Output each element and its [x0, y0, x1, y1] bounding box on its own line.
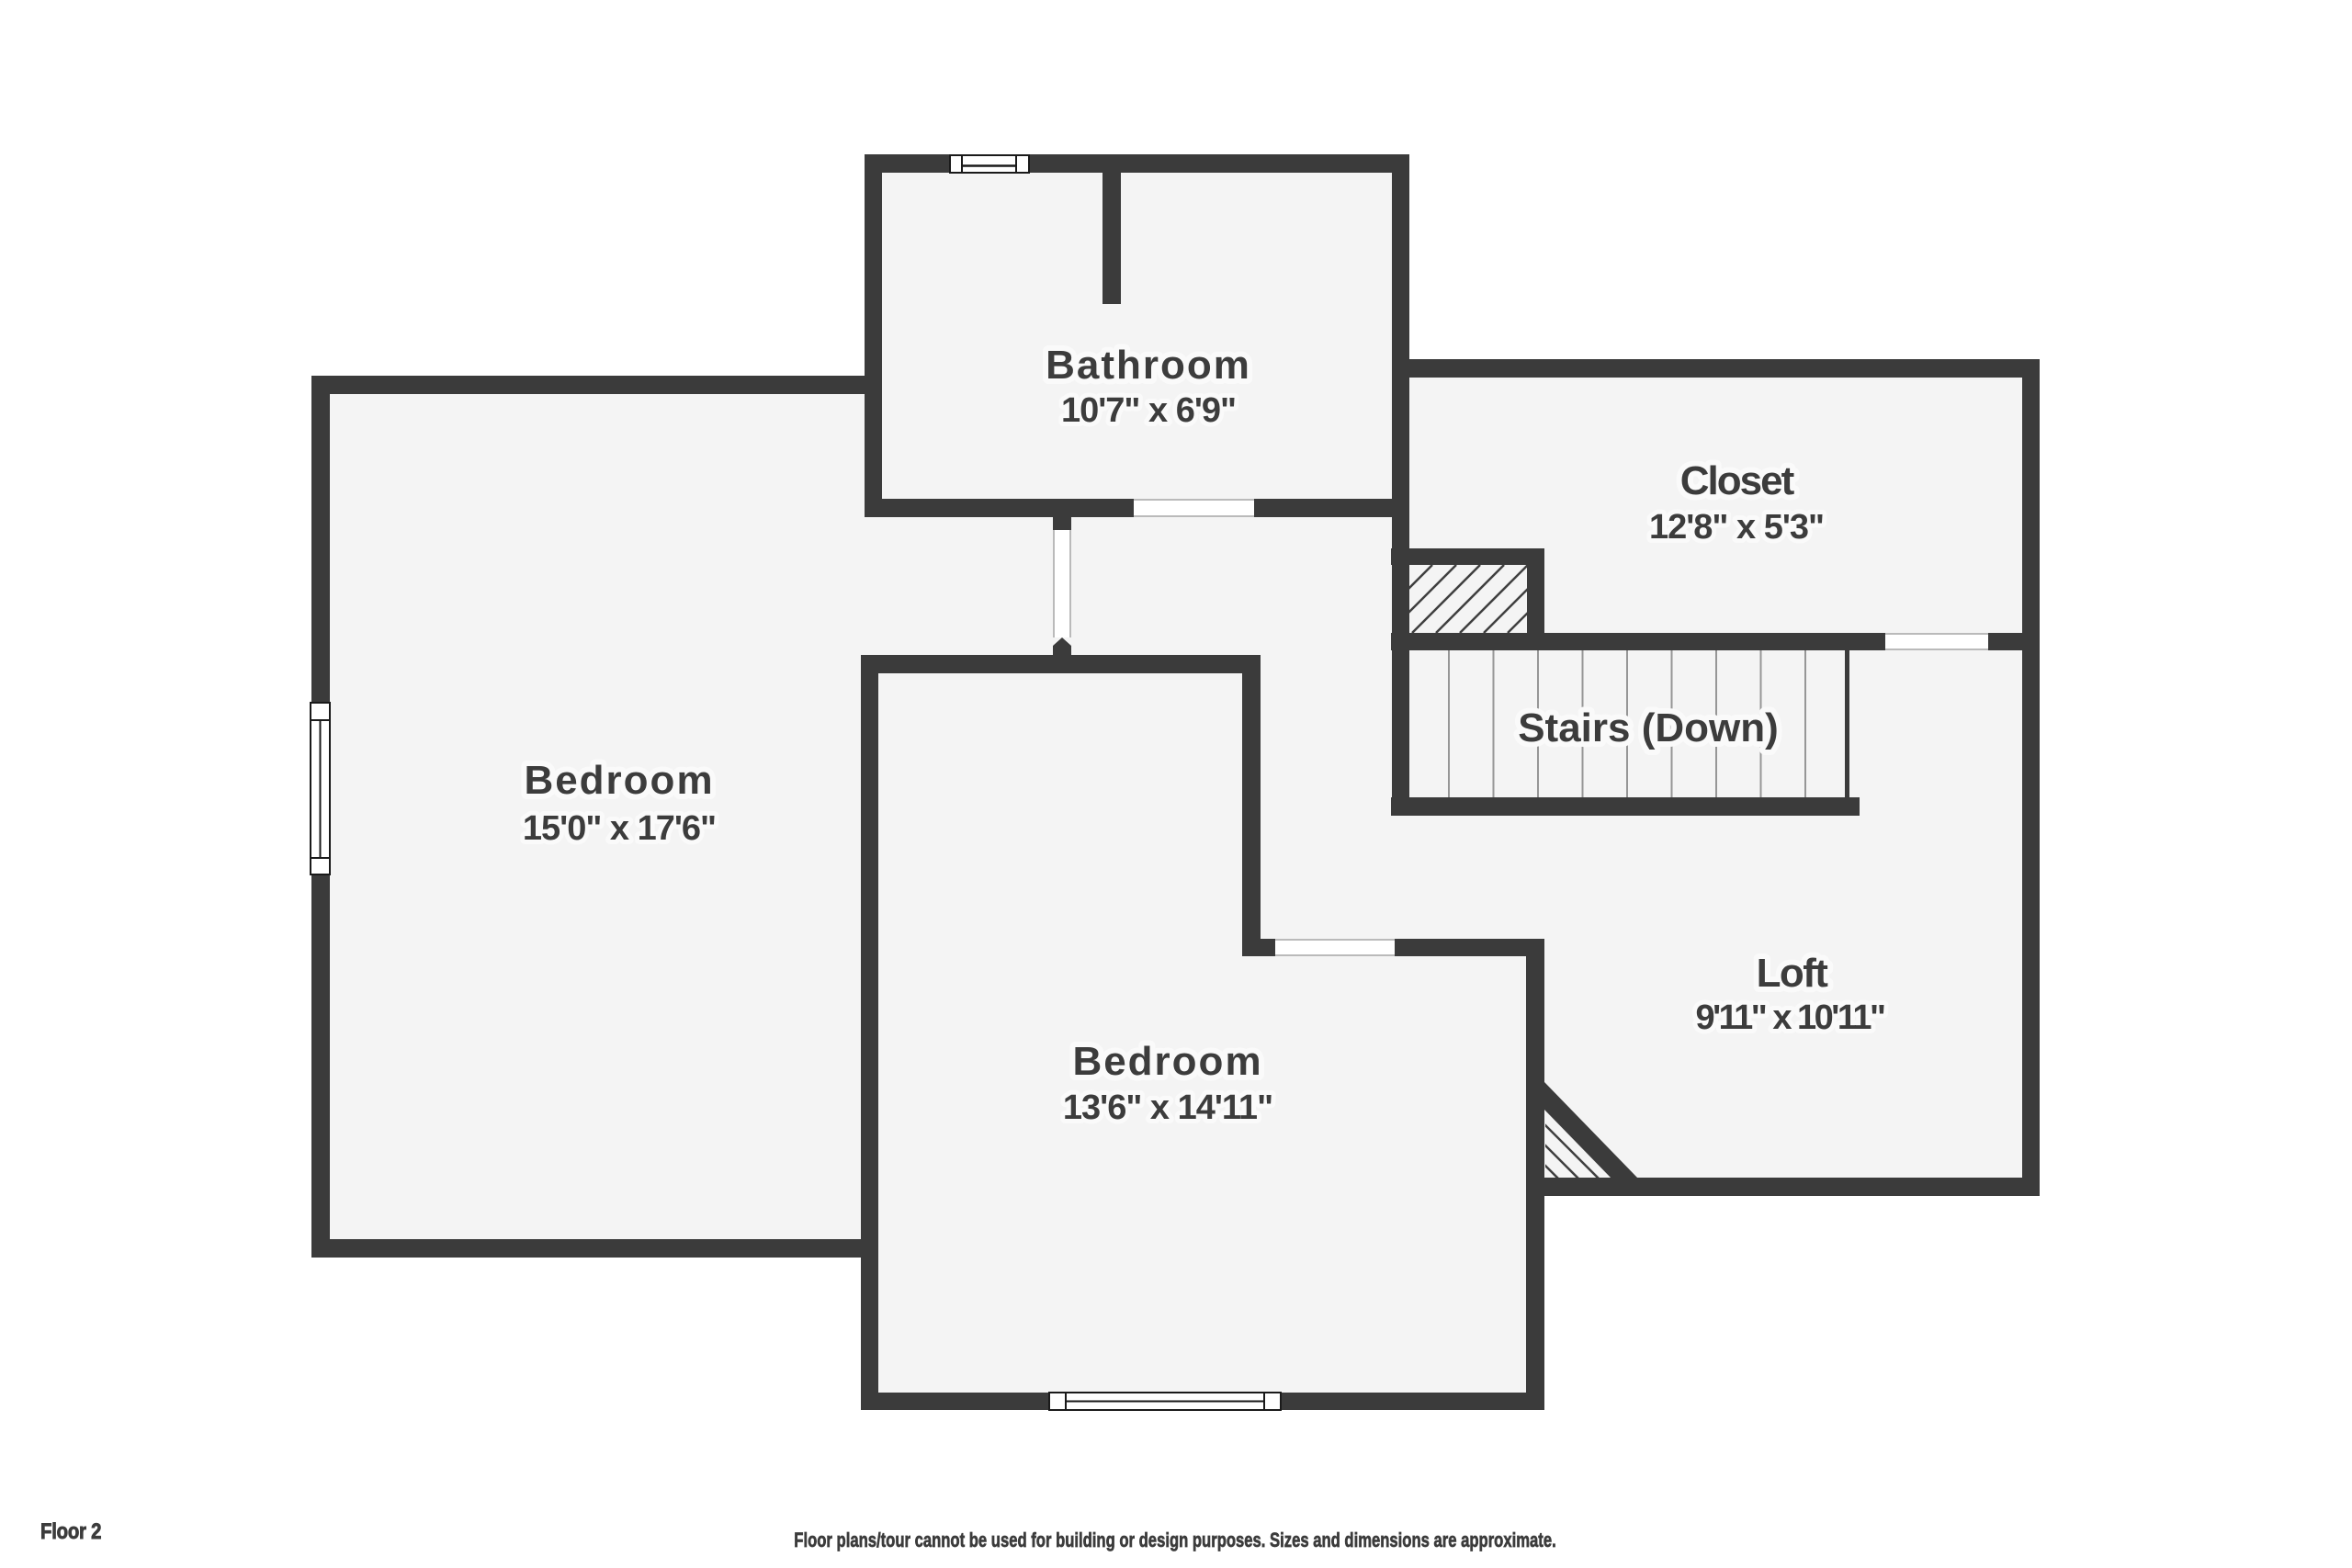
svg-text:9'11" x 10'11": 9'11" x 10'11" — [1695, 998, 1884, 1037]
svg-text:Closet: Closet — [1680, 458, 1795, 503]
svg-text:12'8" x 5'3": 12'8" x 5'3" — [1649, 508, 1824, 547]
svg-text:Floor plans/tour cannot be use: Floor plans/tour cannot be used for buil… — [794, 1529, 1555, 1552]
svg-text:10'7" x 6'9": 10'7" x 6'9" — [1061, 391, 1236, 430]
svg-text:Bathroom: Bathroom — [1046, 343, 1251, 388]
svg-text:15'0" x 17'6": 15'0" x 17'6" — [523, 809, 716, 848]
svg-text:Floor 2: Floor 2 — [40, 1518, 101, 1543]
svg-text:Loft: Loft — [1757, 951, 1829, 996]
svg-text:Stairs (Down): Stairs (Down) — [1518, 705, 1779, 750]
svg-text:Bedroom: Bedroom — [1072, 1039, 1262, 1084]
svg-text:Bedroom: Bedroom — [524, 758, 714, 803]
svg-text:13'6" x 14'11": 13'6" x 14'11" — [1063, 1089, 1272, 1127]
